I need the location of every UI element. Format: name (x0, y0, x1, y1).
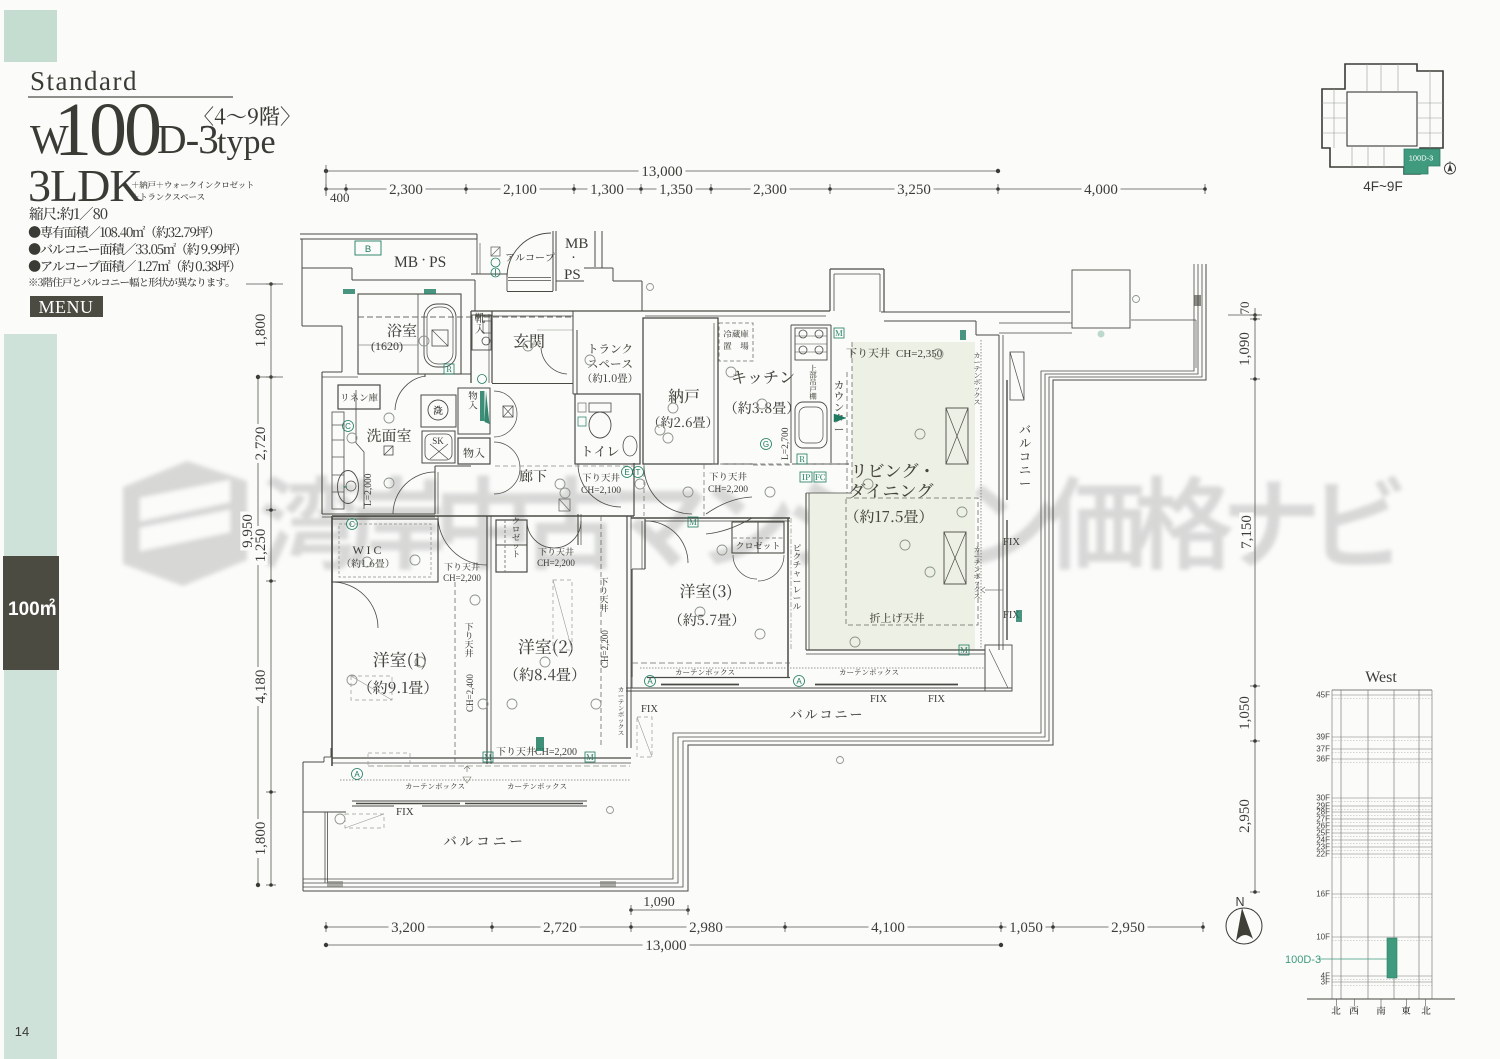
svg-text:SK: SK (432, 436, 444, 446)
svg-text:N: N (1235, 895, 1244, 909)
svg-text:7,150: 7,150 (1239, 515, 1255, 549)
svg-text:13,000: 13,000 (641, 164, 682, 180)
svg-text:39F: 39F (1316, 733, 1330, 742)
svg-text:MB: MB (394, 254, 418, 271)
svg-text:2,720: 2,720 (543, 920, 577, 936)
svg-text:1,250: 1,250 (253, 529, 269, 563)
svg-text:1,050: 1,050 (1009, 920, 1043, 936)
svg-text:3,250: 3,250 (897, 182, 931, 198)
svg-text:C: C (349, 520, 355, 529)
svg-text:D-3: D-3 (157, 116, 218, 162)
svg-text:3F: 3F (1321, 978, 1330, 987)
svg-text:4,000: 4,000 (1084, 182, 1118, 198)
svg-text:1,800: 1,800 (253, 822, 269, 856)
svg-text:MENU: MENU (39, 297, 94, 317)
svg-text:T: T (636, 468, 641, 477)
svg-text:2,100: 2,100 (503, 182, 537, 198)
svg-text:A: A (647, 677, 653, 686)
svg-text:FIX: FIX (1003, 537, 1020, 548)
svg-text:CH=2,200: CH=2,200 (600, 630, 610, 668)
svg-text:1,350: 1,350 (659, 182, 693, 198)
svg-text:2,300: 2,300 (389, 182, 423, 198)
svg-text:CH=2,200: CH=2,200 (537, 558, 575, 568)
svg-text:400: 400 (330, 190, 350, 205)
svg-text:100D-3: 100D-3 (1285, 954, 1321, 966)
svg-text:2: 2 (49, 597, 55, 609)
svg-text:2,950: 2,950 (1111, 920, 1145, 936)
svg-text:CH=2,100: CH=2,100 (581, 486, 621, 496)
svg-text:3,200: 3,200 (391, 920, 425, 936)
svg-text:13,000: 13,000 (645, 938, 686, 954)
svg-text:4F~9F: 4F~9F (1363, 179, 1402, 194)
svg-text:West: West (1365, 669, 1397, 686)
svg-text:G: G (763, 440, 769, 449)
svg-text:1,050: 1,050 (1237, 696, 1253, 730)
svg-text:2,300: 2,300 (753, 182, 787, 198)
svg-text:2,720: 2,720 (253, 427, 269, 461)
svg-text:FIX: FIX (928, 694, 945, 705)
svg-text:1,300: 1,300 (590, 182, 624, 198)
svg-text:C: C (345, 422, 351, 431)
svg-text:1,090: 1,090 (643, 895, 675, 910)
svg-text:22F: 22F (1316, 850, 1330, 859)
svg-text:PS: PS (429, 254, 446, 271)
svg-text:MB: MB (565, 236, 588, 252)
svg-text:CH=2,200: CH=2,200 (708, 485, 748, 495)
svg-text:FIX: FIX (641, 704, 658, 715)
svg-text:(1620): (1620) (371, 339, 403, 353)
svg-text:2,980: 2,980 (689, 920, 723, 936)
svg-text:36F: 36F (1316, 755, 1330, 764)
svg-text:3LDK: 3LDK (28, 160, 142, 211)
svg-text:FIX: FIX (396, 806, 414, 818)
svg-text:CH=2,200: CH=2,200 (443, 573, 481, 583)
svg-text:PS: PS (564, 267, 581, 283)
svg-text:37F: 37F (1316, 745, 1330, 754)
svg-text:FIX: FIX (870, 694, 887, 705)
svg-text:L=2,000: L=2,000 (364, 473, 374, 506)
svg-text:70: 70 (1237, 302, 1252, 315)
svg-text:10F: 10F (1316, 933, 1330, 942)
svg-text:2,950: 2,950 (1237, 799, 1253, 833)
svg-text:·: · (571, 250, 576, 266)
svg-text:A: A (796, 677, 802, 686)
svg-text:100D-3: 100D-3 (1409, 154, 1434, 163)
svg-text:·: · (421, 252, 426, 269)
svg-text:A: A (354, 770, 360, 779)
svg-text:1,800: 1,800 (253, 314, 269, 348)
svg-text:CH=2,400: CH=2,400 (465, 674, 475, 712)
svg-text:14: 14 (15, 1024, 29, 1039)
svg-text:E: E (624, 468, 629, 477)
svg-text:4,100: 4,100 (871, 920, 905, 936)
svg-text:1,090: 1,090 (1237, 332, 1253, 366)
svg-text:W I C: W I C (352, 543, 381, 557)
svg-text:B: B (365, 244, 371, 255)
svg-text:45F: 45F (1316, 691, 1330, 700)
svg-text:16F: 16F (1316, 890, 1330, 899)
svg-text:type: type (217, 124, 276, 161)
svg-text:4,180: 4,180 (253, 670, 269, 704)
svg-text:L=2,700: L=2,700 (781, 427, 791, 460)
